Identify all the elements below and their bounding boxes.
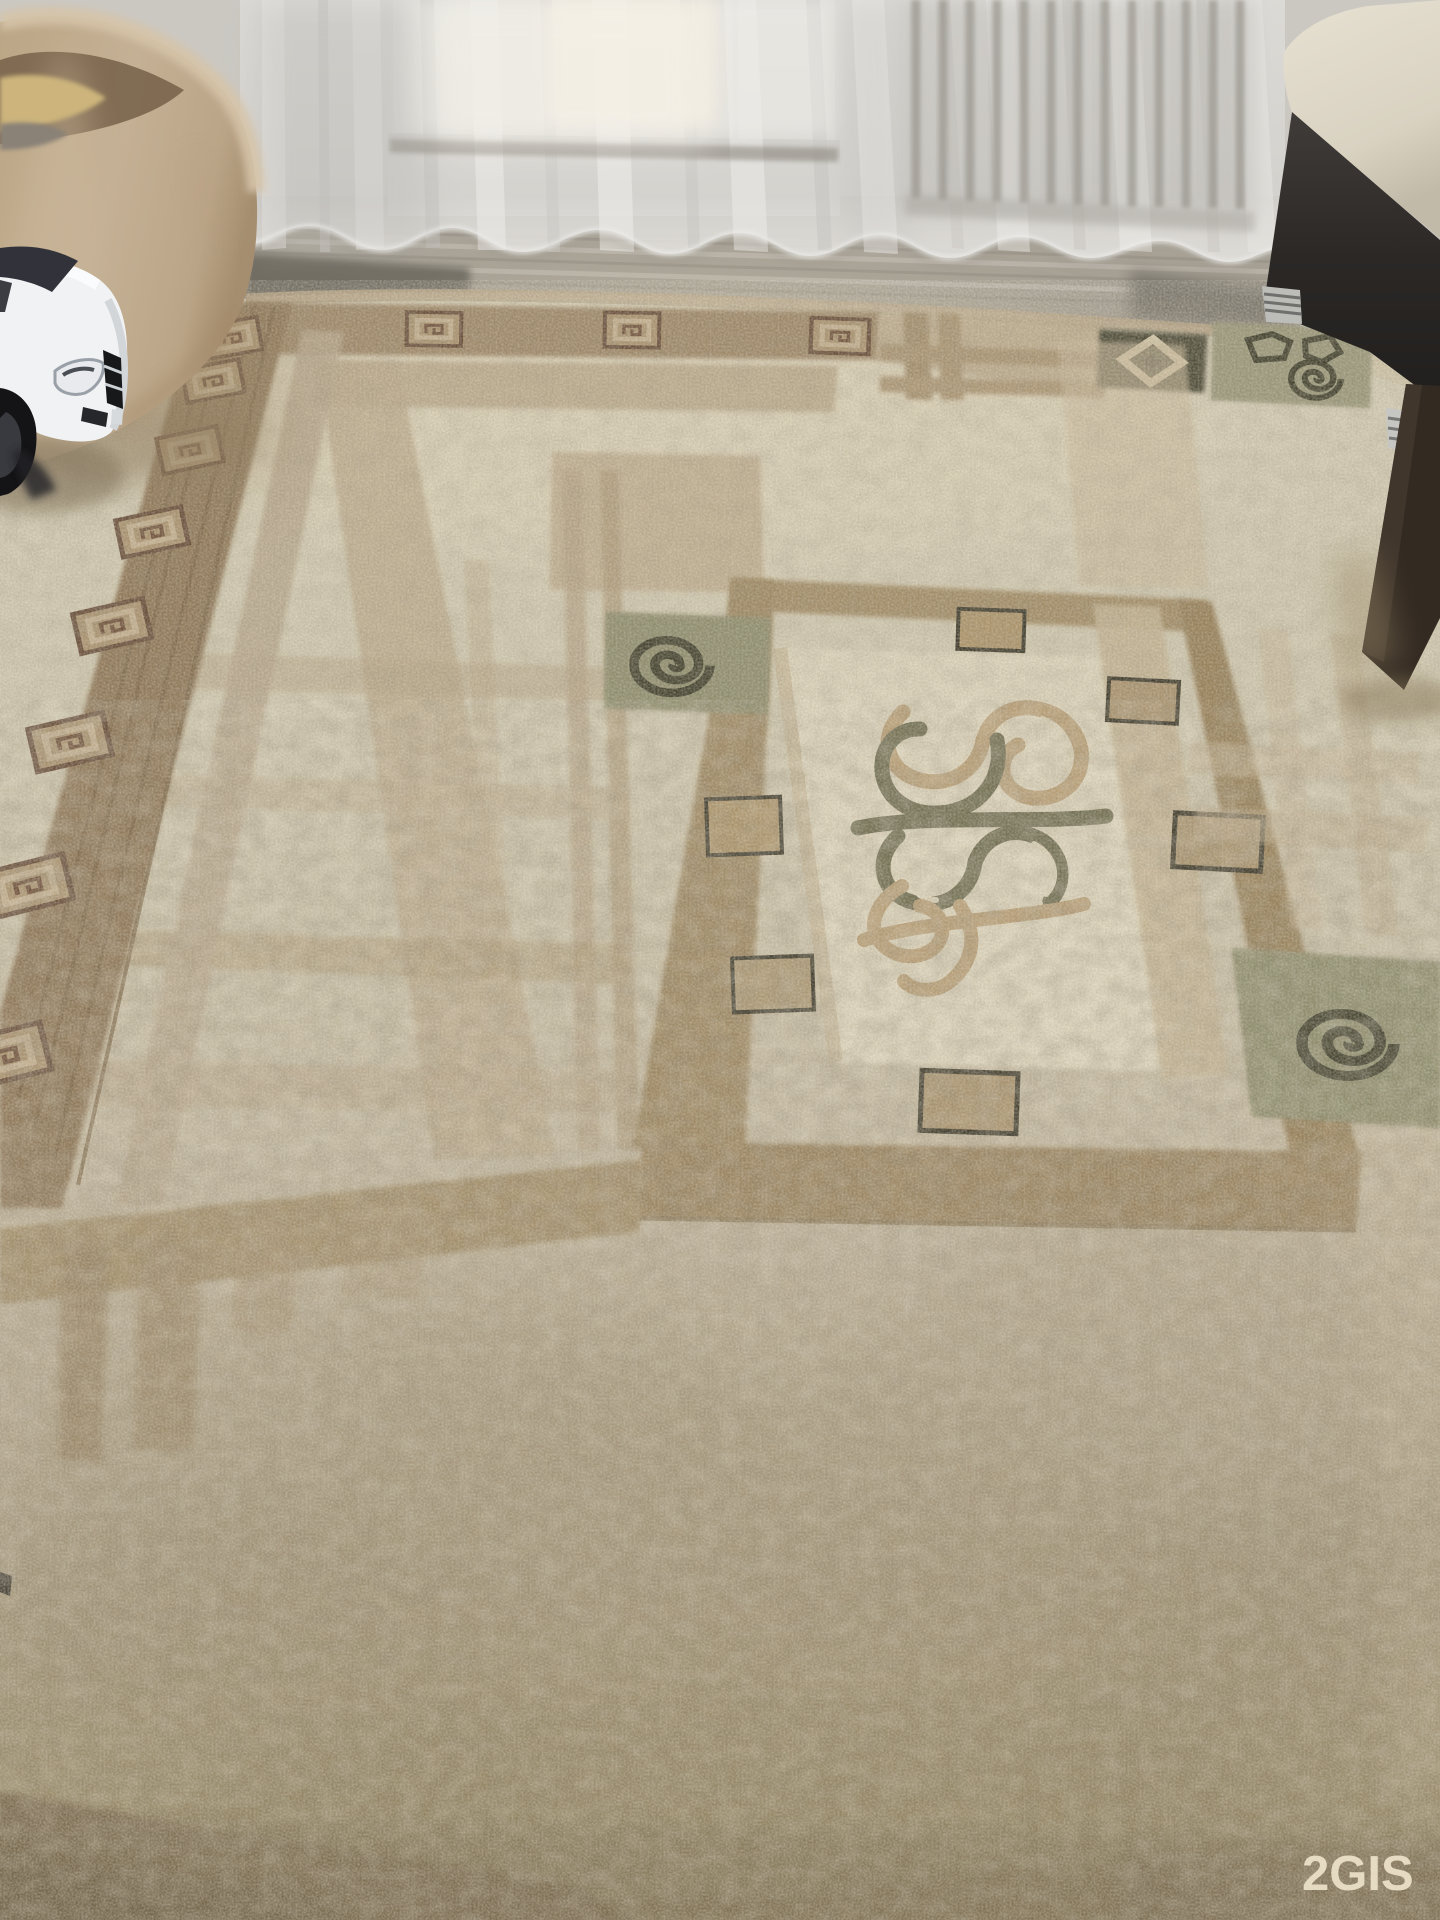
- svg-text:2GIS: 2GIS: [1302, 1847, 1414, 1901]
